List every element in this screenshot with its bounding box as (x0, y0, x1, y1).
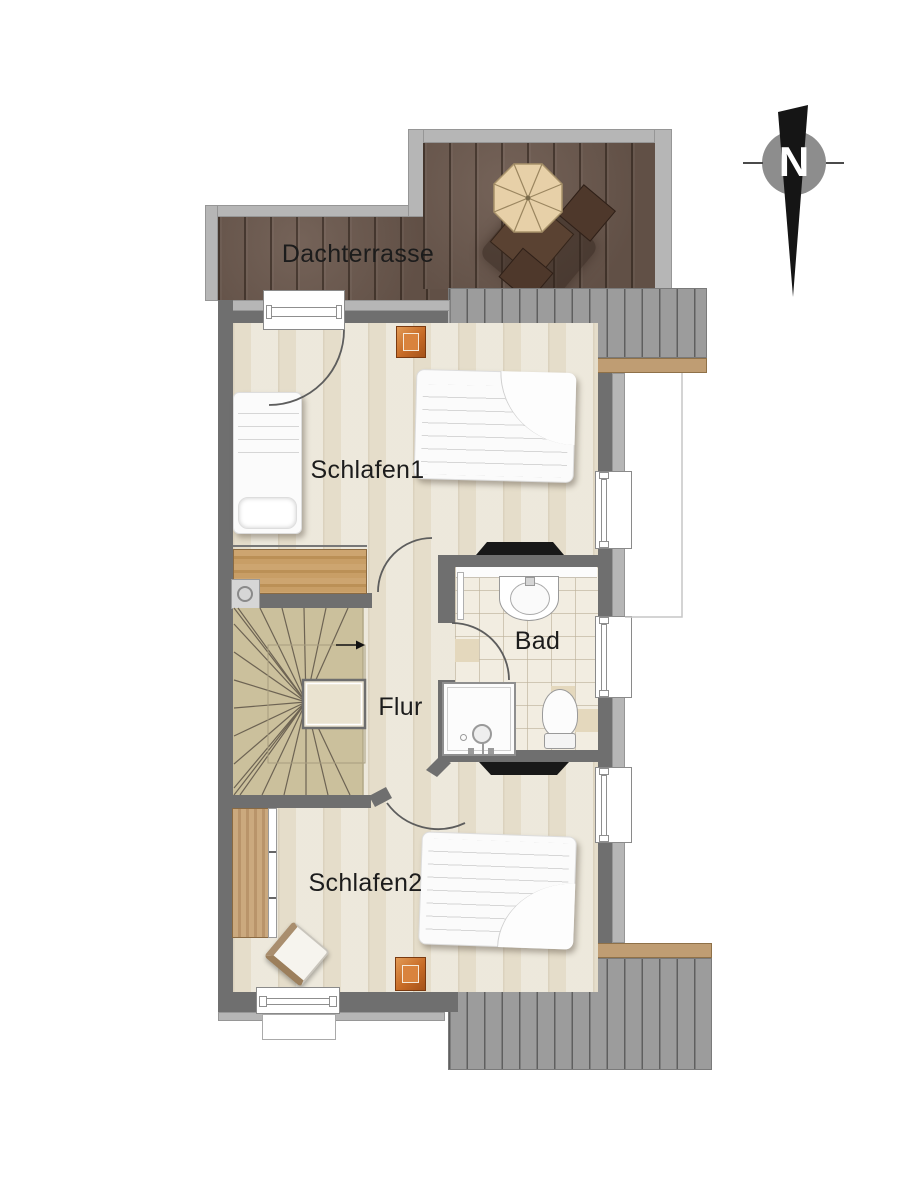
window-glazing (601, 624, 607, 692)
window-east-schlafen1 (595, 471, 632, 549)
shower-drain (472, 724, 492, 744)
lamp-circle (237, 586, 253, 602)
toilet-tank (544, 733, 576, 749)
north-compass (743, 105, 844, 297)
wardrobe-track (268, 808, 277, 938)
door-glazing (270, 307, 338, 317)
skylight-inner (402, 965, 419, 983)
terrace-wall-top-right (408, 129, 672, 143)
pillow (238, 497, 297, 529)
window-glazing (265, 998, 333, 1005)
room-label-dachterrasse: Dachterrasse (243, 240, 473, 269)
window-glazing (601, 775, 607, 837)
shower-foot (468, 748, 474, 754)
room-label-schlafen1: Schlafen1 (285, 456, 450, 485)
bath-radiator (457, 572, 464, 620)
west-wall (218, 300, 233, 1012)
tile-accent (455, 639, 479, 662)
terrace-wall-right (654, 129, 672, 289)
window-cap (599, 541, 609, 548)
floor-plan: Dachterrasse Schlafen1 Bad Flur Schlafen… (0, 0, 897, 1200)
north-arrow-icon (778, 105, 808, 297)
window-south-outer (262, 1014, 336, 1040)
window-cap (329, 996, 337, 1007)
terrace-wall-left (205, 205, 218, 301)
shower-hose (482, 742, 484, 754)
shower (442, 682, 516, 756)
faucet (525, 577, 535, 586)
skylight-2 (395, 957, 426, 991)
skylight-1 (396, 326, 426, 358)
window-east-bad (595, 616, 632, 698)
lamp-table (231, 579, 260, 609)
terrace-door (263, 290, 345, 330)
window-cap (259, 996, 267, 1007)
north-label: N (773, 138, 815, 186)
window-east-schlafen2 (595, 767, 632, 843)
track-mark (269, 851, 276, 853)
door-jamb (266, 305, 272, 319)
window-cap (599, 472, 609, 479)
window-cap (599, 617, 609, 624)
room-label-schlafen2: Schlafen2 (283, 869, 448, 898)
washbasin (510, 582, 550, 615)
window-cap (599, 835, 609, 842)
bath-west-wall-upper (438, 567, 455, 623)
track-mark (269, 897, 276, 899)
sideboard-top-line (233, 545, 367, 547)
window-cap (599, 690, 609, 697)
toilet-bowl (542, 689, 578, 737)
terrace-wall-top-left (205, 205, 423, 217)
room-label-bad: Bad (495, 627, 580, 656)
tile-accent (575, 709, 598, 732)
roof-outline (625, 373, 682, 617)
bath-north-wall (438, 555, 598, 567)
door-jamb (336, 305, 342, 319)
room-label-flur: Flur (358, 693, 443, 722)
window-cap (599, 768, 609, 775)
stair-south-wall (218, 795, 371, 808)
washbasin-counter (499, 576, 559, 621)
shower-knob (460, 734, 467, 741)
window-south-inner (256, 987, 340, 1014)
terrace-wall-connector (408, 129, 424, 217)
wardrobe (232, 808, 269, 938)
shower-foot (488, 748, 494, 754)
window-glazing (601, 479, 607, 543)
skylight-inner (403, 333, 419, 351)
